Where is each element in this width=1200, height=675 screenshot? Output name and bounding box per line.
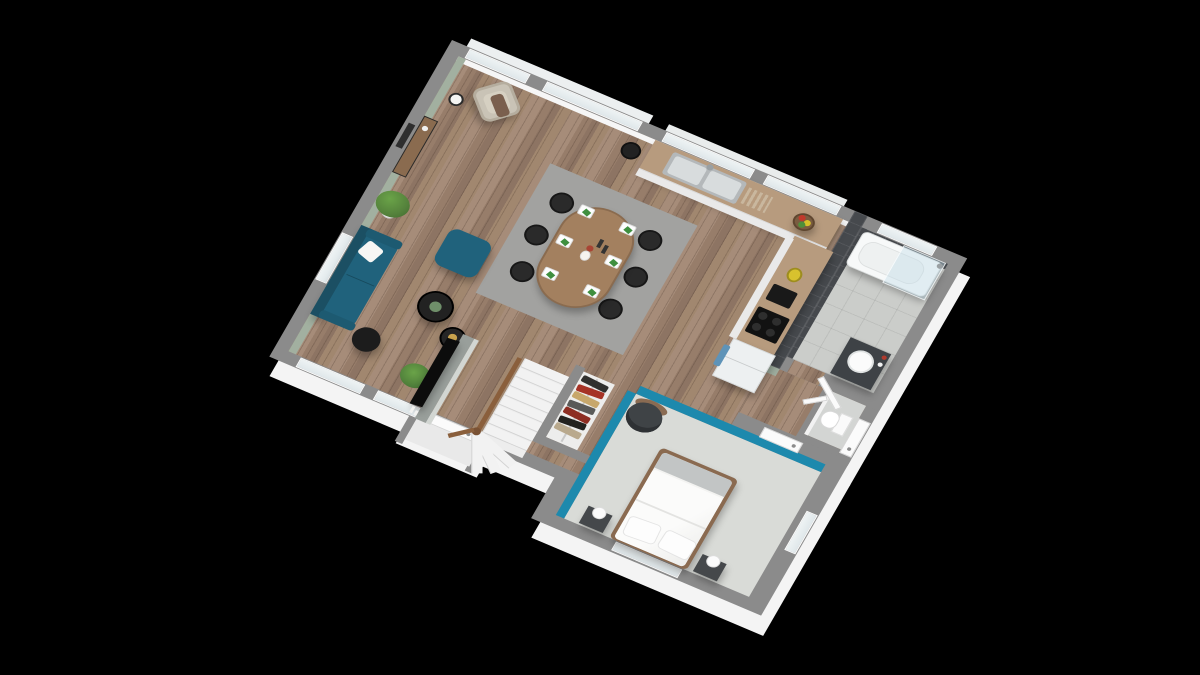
plan-projection xyxy=(241,40,968,625)
floorplan-render xyxy=(0,0,1200,675)
stair-winder-step xyxy=(471,431,482,473)
